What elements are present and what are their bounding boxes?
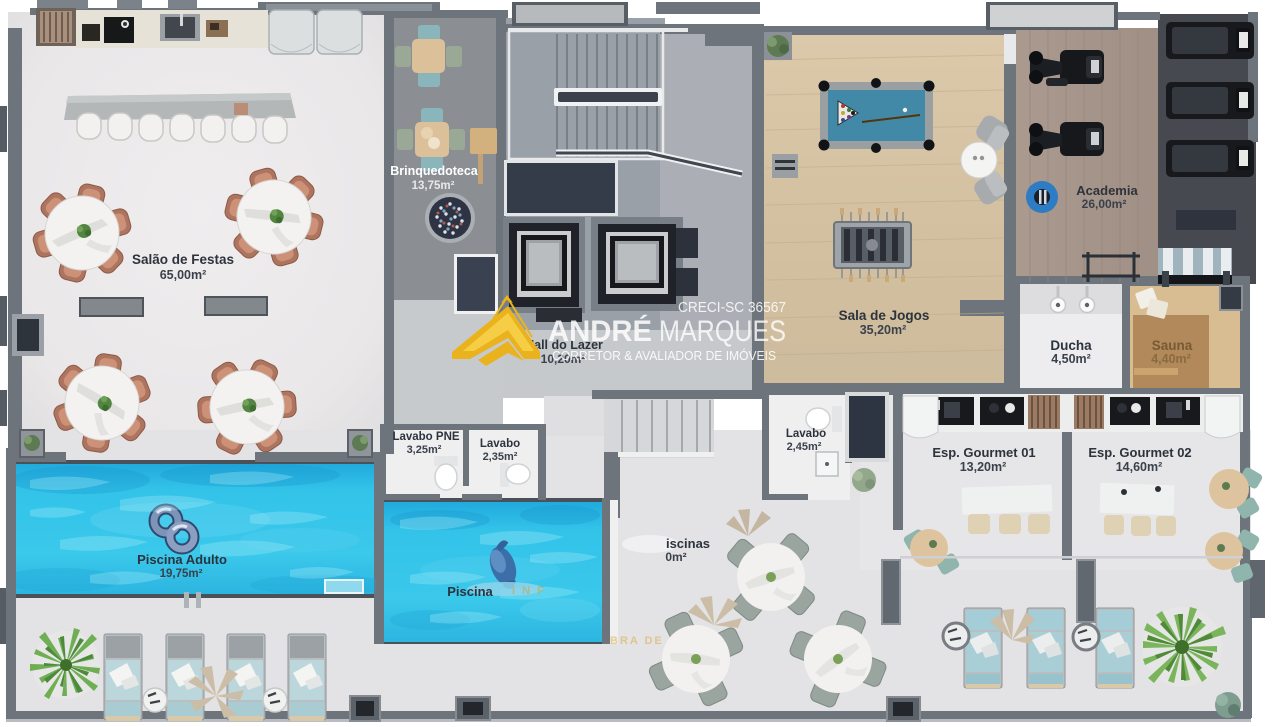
svg-text:Piscina Adulto: Piscina Adulto bbox=[137, 552, 227, 567]
svg-text:Esp. Gourmet 01: Esp. Gourmet 01 bbox=[932, 445, 1035, 460]
svg-text:CRECI-SC 36567: CRECI-SC 36567 bbox=[678, 300, 786, 316]
svg-text:MARQUES: MARQUES bbox=[659, 315, 786, 348]
svg-text:Ducha: Ducha bbox=[1050, 338, 1092, 353]
svg-text:35,20m²: 35,20m² bbox=[860, 323, 907, 337]
svg-text:4,50m²: 4,50m² bbox=[1051, 352, 1091, 366]
svg-text:14,60m²: 14,60m² bbox=[1116, 460, 1163, 474]
svg-text:Lavabo: Lavabo bbox=[480, 438, 520, 450]
svg-text:13,20m²: 13,20m² bbox=[960, 460, 1007, 474]
svg-text:3,25m²: 3,25m² bbox=[407, 444, 442, 456]
svg-text:Brinquedoteca: Brinquedoteca bbox=[390, 164, 479, 178]
svg-text:Lavabo PNE: Lavabo PNE bbox=[392, 431, 459, 443]
svg-text:4,40m²: 4,40m² bbox=[1151, 352, 1191, 366]
svg-text:19,75m²: 19,75m² bbox=[160, 568, 203, 580]
svg-text:Esp. Gourmet 02: Esp. Gourmet 02 bbox=[1088, 445, 1191, 460]
svg-text:CORRETOR & AVALIADOR DE IMÓVEI: CORRETOR & AVALIADOR DE IMÓVEIS bbox=[552, 348, 776, 363]
svg-text:iscinas: iscinas bbox=[666, 536, 710, 551]
svg-text:Piscina: Piscina bbox=[447, 584, 493, 599]
svg-text:Academia: Academia bbox=[1076, 183, 1138, 198]
svg-text:I N F: I N F bbox=[512, 585, 546, 597]
svg-text:Sala de Jogos: Sala de Jogos bbox=[839, 308, 930, 323]
svg-text:26,00m²: 26,00m² bbox=[1082, 197, 1127, 211]
svg-text:13,75m²: 13,75m² bbox=[412, 180, 455, 192]
svg-text:2,35m²: 2,35m² bbox=[483, 451, 518, 463]
svg-text:2,45m²: 2,45m² bbox=[787, 441, 822, 453]
svg-text:ANDRÉ: ANDRÉ bbox=[548, 314, 652, 348]
svg-text:Lavabo: Lavabo bbox=[786, 428, 826, 440]
svg-text:65,00m²: 65,00m² bbox=[160, 268, 207, 282]
svg-text:Salão de Festas: Salão de Festas bbox=[132, 252, 234, 267]
svg-text:Sauna: Sauna bbox=[1152, 338, 1193, 353]
svg-text:0m²: 0m² bbox=[665, 550, 686, 564]
